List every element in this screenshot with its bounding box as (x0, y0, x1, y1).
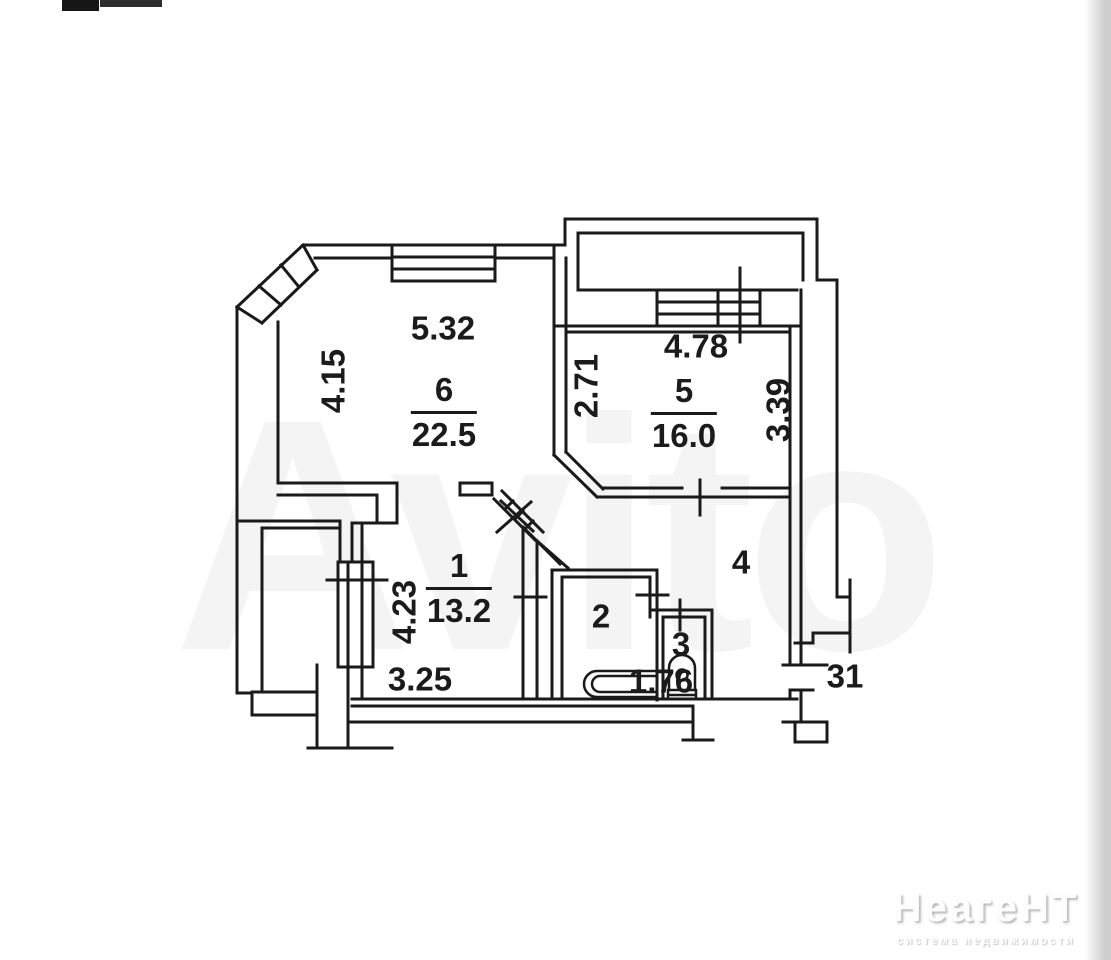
corner-bay-window (237, 245, 317, 323)
room-1-number: 1 (426, 549, 492, 590)
bottom-walls (348, 699, 797, 740)
floor-plan-scan-page: Avito (0, 0, 1111, 960)
room1-right-wall (515, 527, 546, 699)
room-1-area: 13.2 (427, 594, 491, 627)
top-window (392, 245, 495, 281)
scan-artifact (62, 0, 99, 11)
dim-room6-height: 4.15 (317, 349, 350, 413)
room-3-number: 3 (672, 628, 690, 661)
room-2-number: 2 (592, 600, 610, 633)
neagent-logo-text: НеагеНТ (872, 886, 1100, 931)
room-6-area: 22.5 (412, 418, 476, 451)
neagent-logo: НеагеНТ система недвижимости (872, 886, 1100, 947)
dim-room6-width: 5.32 (411, 312, 475, 345)
dim-room5-right: 3.39 (762, 378, 795, 442)
scan-artifact (100, 0, 162, 7)
neagent-tagline: система недвижимости (872, 935, 1100, 947)
room-4-number: 4 (732, 546, 750, 579)
dim-stair-landing: 31 (827, 660, 864, 693)
dim-room1-width: 3.25 (388, 663, 452, 696)
dim-entry-hall: 1.76 (629, 665, 693, 698)
room-6-label: 6 22.5 (411, 373, 477, 451)
dim-room1-height: 4.23 (388, 580, 421, 644)
dim-room5-width: 4.78 (664, 330, 728, 363)
dim-room5-left: 2.71 (570, 354, 603, 418)
balcony-window-room1 (327, 562, 387, 667)
room-5-number: 5 (651, 374, 717, 415)
room1-diagonal-door (494, 491, 568, 568)
room-6-number: 6 (411, 373, 477, 414)
room-5-label: 5 16.0 (651, 374, 717, 452)
room-5-area: 16.0 (652, 419, 716, 452)
room-1-label: 1 13.2 (426, 549, 492, 627)
scan-edge-strip (1085, 0, 1111, 960)
floor-plan-drawing (0, 0, 1111, 960)
